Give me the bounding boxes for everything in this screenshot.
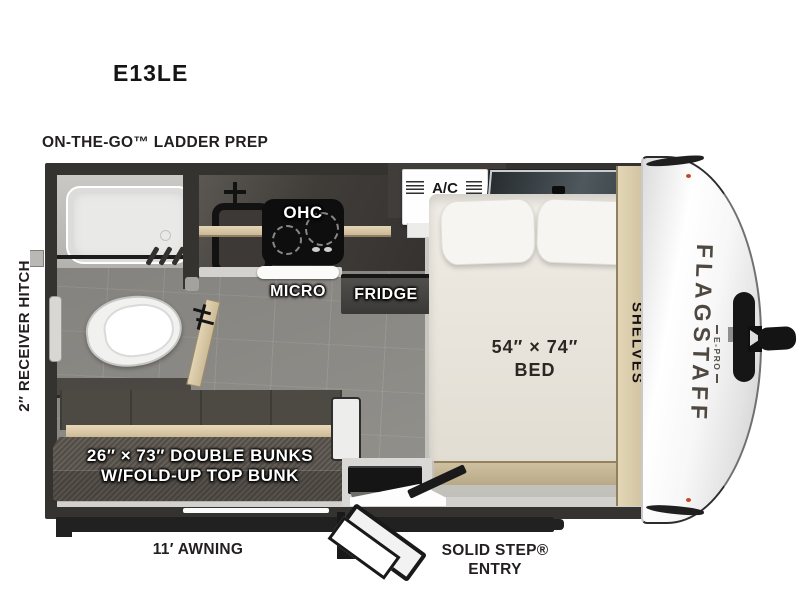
micro-label: MICRO (255, 283, 341, 301)
bunks-label: 26″ × 73″ DOUBLE BUNKS W/FOLD-UP TOP BUN… (70, 446, 330, 485)
brand-series-text: E-PRO (712, 337, 722, 371)
receiver-hitch-callout: 2″ RECEIVER HITCH (16, 256, 32, 416)
ohc-label: OHC (262, 203, 344, 223)
flip-up-table (331, 397, 361, 461)
awning-rail (56, 517, 554, 532)
stove-knob (324, 247, 332, 252)
shower (66, 186, 192, 264)
door-jamb (185, 277, 199, 291)
bunks-size-text: 26″ × 73″ DOUBLE BUNKS (70, 446, 330, 466)
awning-roller (183, 508, 329, 513)
fridge-label: FRIDGE (338, 286, 434, 304)
awning-callout: 11′ AWNING (118, 541, 278, 559)
awning-bracket (56, 517, 72, 537)
toilet-lid (101, 300, 178, 361)
window-latch (552, 186, 565, 194)
stove-knob (312, 247, 320, 252)
marker-light (686, 174, 691, 178)
bed-label: 54″ × 74″ BED (455, 336, 615, 381)
solid-step-text: SOLID STEP® (420, 541, 570, 560)
microwave (257, 266, 339, 279)
faucet-icon (233, 182, 237, 208)
entry-text: ENTRY (420, 560, 570, 579)
faucet-icon (224, 190, 246, 194)
decal-line (716, 325, 718, 334)
awning-end-cap (552, 519, 564, 530)
marker-light (686, 498, 691, 502)
floorplan-page: E13LE ON-THE-GO™ LADDER PREP 2″ RECEIVER… (0, 0, 800, 600)
ladder-prep-callout: ON-THE-GO™ LADDER PREP (42, 134, 268, 152)
solid-step-callout: SOLID STEP® ENTRY (420, 541, 570, 580)
bunk-back-cushion (60, 390, 342, 430)
pillow (440, 198, 536, 265)
brand-series-decal: E-PRO (712, 316, 722, 392)
burner-icon (272, 225, 302, 255)
bed-text: BED (455, 359, 615, 382)
bed-size-text: 54″ × 74″ (455, 336, 615, 359)
model-title: E13LE (113, 60, 188, 87)
shower-drain (160, 230, 171, 241)
receiver-hitch-tube (30, 250, 44, 267)
towel-bar (49, 296, 62, 362)
bunk-wood-rail (66, 425, 354, 438)
decal-line (716, 374, 718, 383)
hitch-handle (757, 326, 796, 351)
bunks-note-text: W/FOLD-UP TOP BUNK (70, 466, 330, 486)
bathroom-divider-wall (183, 163, 199, 289)
